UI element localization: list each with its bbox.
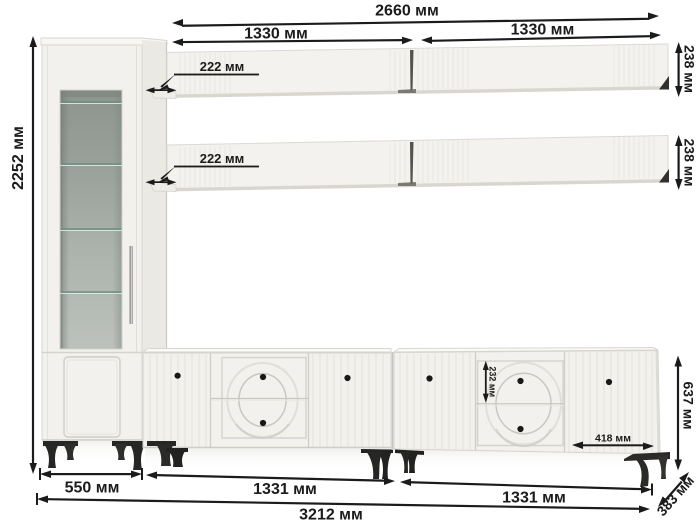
- svg-text:550 мм: 550 мм: [65, 480, 120, 497]
- svg-text:2660 мм: 2660 мм: [375, 3, 439, 20]
- svg-text:637 мм: 637 мм: [681, 382, 697, 430]
- svg-text:238 мм: 238 мм: [682, 45, 698, 93]
- svg-text:3212 мм: 3212 мм: [299, 507, 363, 524]
- svg-text:222 мм: 222 мм: [200, 151, 245, 166]
- svg-text:232 мм: 232 мм: [488, 366, 498, 397]
- svg-text:418 мм: 418 мм: [595, 433, 631, 445]
- svg-text:238 мм: 238 мм: [682, 139, 698, 187]
- svg-text:1331 мм: 1331 мм: [502, 490, 566, 507]
- svg-text:1330 мм: 1330 мм: [511, 22, 575, 39]
- svg-text:222 мм: 222 мм: [200, 59, 245, 74]
- svg-text:1330 мм: 1330 мм: [244, 26, 308, 43]
- svg-text:2252 мм: 2252 мм: [10, 126, 27, 190]
- svg-text:1331 мм: 1331 мм: [253, 481, 317, 498]
